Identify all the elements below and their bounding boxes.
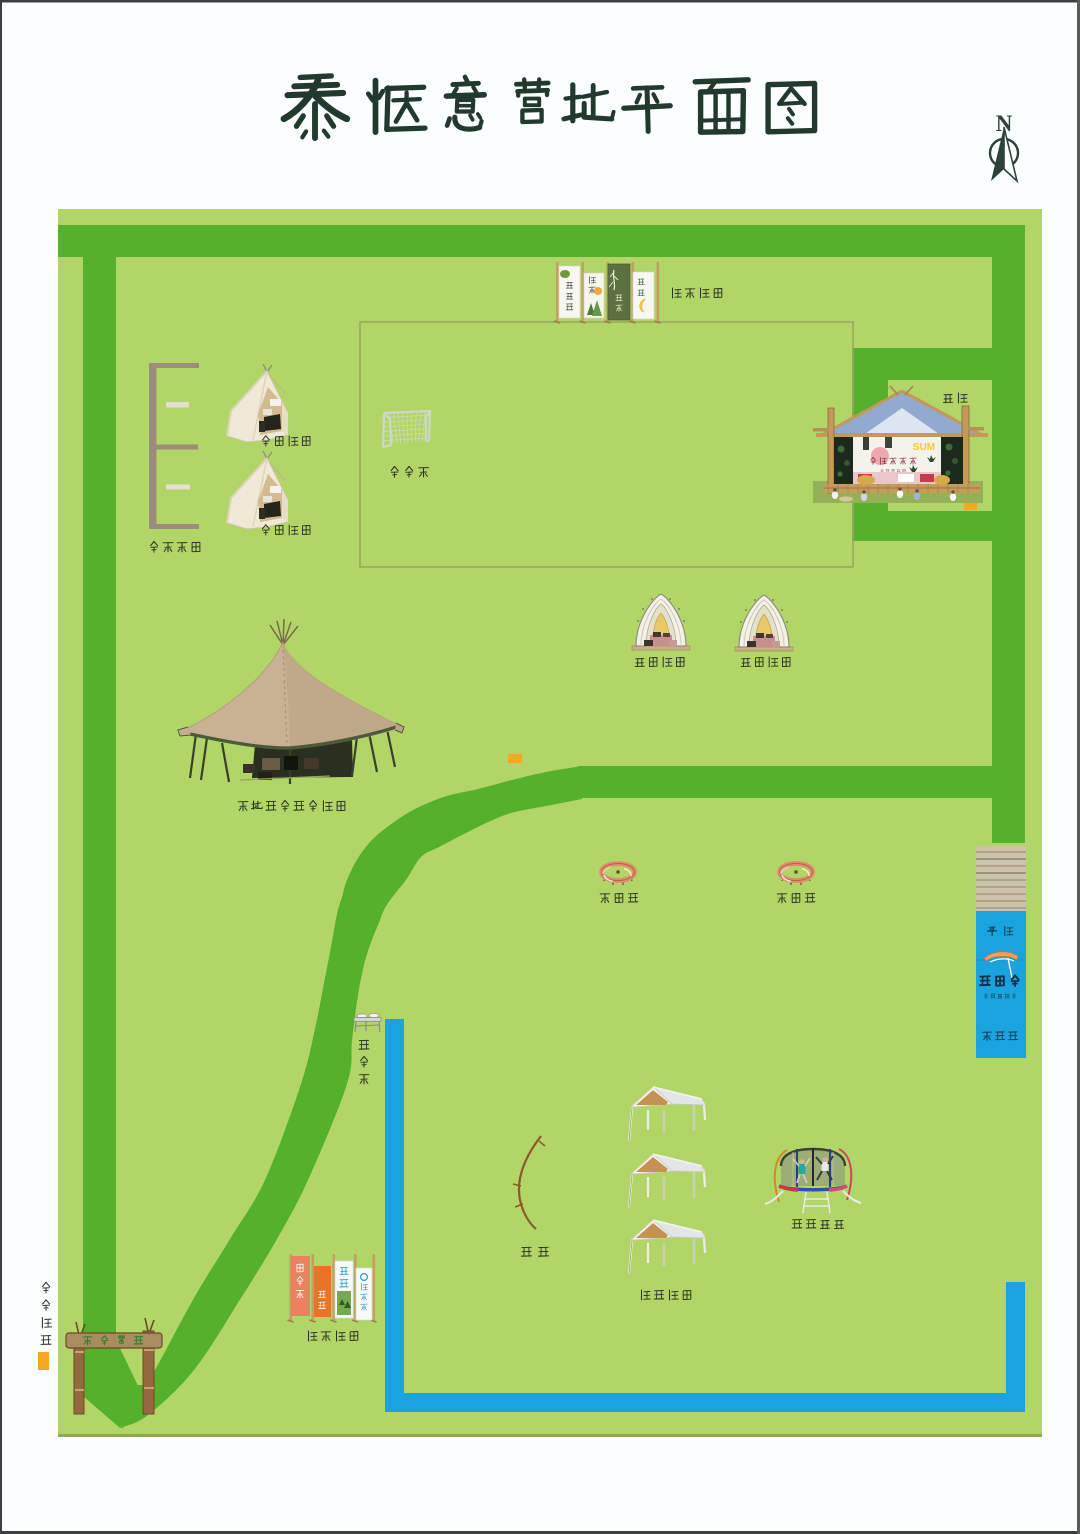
svg-text:SUM: SUM: [913, 442, 935, 453]
